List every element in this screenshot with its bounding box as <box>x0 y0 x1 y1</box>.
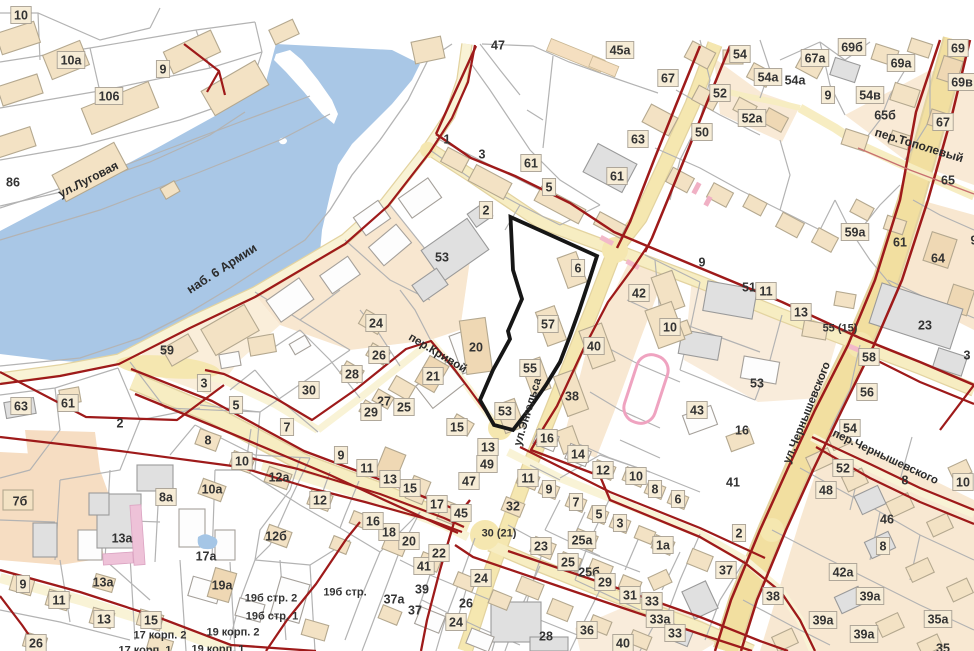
svg-text:10: 10 <box>663 321 677 335</box>
svg-text:9: 9 <box>338 449 345 463</box>
svg-text:13: 13 <box>383 473 397 487</box>
svg-text:11: 11 <box>759 285 772 299</box>
svg-text:56: 56 <box>860 386 874 400</box>
svg-text:12б: 12б <box>265 530 287 544</box>
svg-text:49: 49 <box>480 458 494 472</box>
svg-text:53: 53 <box>498 405 512 419</box>
svg-text:16: 16 <box>735 424 749 438</box>
svg-text:50: 50 <box>695 126 709 140</box>
svg-text:23: 23 <box>918 319 932 333</box>
svg-text:55 (15): 55 (15) <box>823 323 858 335</box>
svg-text:47: 47 <box>491 39 505 53</box>
svg-text:2: 2 <box>736 527 743 541</box>
svg-text:41: 41 <box>726 476 740 490</box>
svg-text:9: 9 <box>20 578 27 592</box>
svg-text:20: 20 <box>469 341 483 355</box>
svg-text:51: 51 <box>742 281 756 295</box>
svg-text:37: 37 <box>719 564 733 578</box>
svg-text:6: 6 <box>575 262 582 276</box>
svg-text:8: 8 <box>902 474 909 488</box>
svg-text:8: 8 <box>652 483 659 497</box>
svg-text:12: 12 <box>596 464 610 478</box>
svg-text:9: 9 <box>825 89 832 103</box>
svg-text:54a: 54a <box>758 71 780 85</box>
svg-text:25: 25 <box>561 556 575 570</box>
svg-text:28: 28 <box>345 368 359 382</box>
svg-text:17 корп. 1: 17 корп. 1 <box>119 645 172 651</box>
svg-text:29: 29 <box>598 576 612 590</box>
svg-text:10: 10 <box>235 455 249 469</box>
svg-text:69в: 69в <box>951 76 973 90</box>
svg-text:47: 47 <box>462 475 476 489</box>
svg-text:30 (21): 30 (21) <box>482 528 517 540</box>
svg-text:53: 53 <box>750 377 764 391</box>
svg-text:106: 106 <box>99 90 120 104</box>
svg-text:61: 61 <box>610 170 624 184</box>
svg-text:67: 67 <box>936 116 950 130</box>
svg-text:29: 29 <box>364 406 378 420</box>
svg-text:11: 11 <box>360 462 373 476</box>
svg-text:33: 33 <box>668 627 682 641</box>
svg-text:32: 32 <box>506 500 520 514</box>
svg-text:6: 6 <box>675 493 682 507</box>
svg-text:18: 18 <box>382 526 396 540</box>
svg-text:35a: 35a <box>928 613 950 627</box>
svg-text:3: 3 <box>617 517 624 531</box>
svg-text:63: 63 <box>14 400 28 414</box>
svg-text:16: 16 <box>540 432 554 446</box>
svg-text:25a: 25a <box>572 534 594 548</box>
svg-text:9: 9 <box>546 483 553 497</box>
svg-text:7: 7 <box>573 496 580 510</box>
svg-text:5: 5 <box>596 508 603 522</box>
svg-text:13a: 13a <box>112 532 134 546</box>
svg-text:11: 11 <box>521 472 534 486</box>
svg-text:69a: 69a <box>891 57 913 71</box>
svg-text:54a: 54a <box>785 74 807 88</box>
svg-text:37a: 37a <box>384 593 406 607</box>
svg-text:17: 17 <box>430 498 444 512</box>
svg-text:26: 26 <box>372 349 386 363</box>
svg-text:12: 12 <box>313 494 327 508</box>
svg-text:33: 33 <box>645 595 659 609</box>
svg-text:10a: 10a <box>61 54 83 68</box>
svg-text:5: 5 <box>546 181 553 195</box>
svg-text:24: 24 <box>369 317 383 331</box>
svg-text:20: 20 <box>402 535 416 549</box>
svg-text:10: 10 <box>629 470 643 484</box>
svg-text:9: 9 <box>971 234 974 248</box>
svg-text:13a: 13a <box>93 576 115 590</box>
svg-text:64: 64 <box>931 252 945 266</box>
svg-text:52: 52 <box>836 462 850 476</box>
svg-text:8: 8 <box>205 434 212 448</box>
svg-text:55: 55 <box>523 362 537 376</box>
svg-text:1a: 1a <box>656 539 671 553</box>
svg-text:39a: 39a <box>813 614 835 628</box>
svg-text:86: 86 <box>6 176 20 190</box>
svg-text:61: 61 <box>61 397 75 411</box>
svg-text:61: 61 <box>524 157 538 171</box>
svg-text:10a: 10a <box>202 483 224 497</box>
svg-text:57: 57 <box>541 318 555 332</box>
svg-text:23: 23 <box>534 540 548 554</box>
svg-text:13: 13 <box>794 306 808 320</box>
svg-text:37: 37 <box>408 604 422 618</box>
svg-text:65: 65 <box>941 174 955 188</box>
svg-text:9: 9 <box>160 63 167 77</box>
svg-text:45: 45 <box>454 507 468 521</box>
svg-text:35: 35 <box>936 642 950 651</box>
svg-text:54: 54 <box>733 48 747 62</box>
svg-text:22: 22 <box>432 547 446 561</box>
svg-text:52: 52 <box>713 87 727 101</box>
svg-text:67a: 67a <box>805 52 827 66</box>
svg-text:36: 36 <box>580 624 594 638</box>
svg-text:25: 25 <box>397 401 411 415</box>
svg-text:15: 15 <box>144 614 158 628</box>
svg-text:26: 26 <box>459 597 473 611</box>
svg-text:3: 3 <box>964 349 971 363</box>
svg-text:58: 58 <box>862 351 876 365</box>
svg-text:8: 8 <box>880 540 887 554</box>
svg-text:10: 10 <box>956 476 970 490</box>
svg-text:63: 63 <box>631 133 645 147</box>
svg-text:11: 11 <box>52 594 65 608</box>
svg-text:1: 1 <box>444 133 451 147</box>
svg-text:39: 39 <box>415 583 429 597</box>
svg-text:42: 42 <box>632 287 646 301</box>
svg-text:43: 43 <box>690 404 704 418</box>
svg-text:13: 13 <box>97 613 111 627</box>
svg-text:7: 7 <box>284 421 291 435</box>
svg-text:59: 59 <box>160 344 174 358</box>
svg-text:2: 2 <box>483 204 490 218</box>
svg-text:17 корп. 2: 17 корп. 2 <box>134 630 187 642</box>
svg-text:26: 26 <box>29 637 43 651</box>
svg-text:48: 48 <box>819 484 833 498</box>
svg-text:24: 24 <box>474 572 488 586</box>
svg-text:65б: 65б <box>874 109 896 123</box>
svg-text:14: 14 <box>571 448 585 462</box>
svg-text:8a: 8a <box>159 491 174 505</box>
svg-text:19б стр. 1: 19б стр. 1 <box>246 611 299 623</box>
svg-text:45a: 45a <box>610 44 632 58</box>
svg-text:53: 53 <box>435 251 449 265</box>
svg-text:40: 40 <box>616 637 630 651</box>
svg-text:28: 28 <box>539 630 553 644</box>
svg-text:38: 38 <box>565 390 579 404</box>
svg-text:5: 5 <box>233 399 240 413</box>
svg-text:19 корп. 2: 19 корп. 2 <box>207 627 260 639</box>
svg-text:9: 9 <box>699 256 706 270</box>
svg-text:3: 3 <box>479 148 486 162</box>
svg-text:59a: 59a <box>845 226 867 240</box>
svg-text:19 корп. 1: 19 корп. 1 <box>192 644 245 651</box>
svg-text:19б стр. 2: 19б стр. 2 <box>245 593 298 605</box>
svg-text:12a: 12a <box>269 471 291 485</box>
svg-text:10: 10 <box>14 9 28 23</box>
svg-text:54в: 54в <box>859 89 881 103</box>
svg-text:19б стр.: 19б стр. <box>323 587 366 599</box>
svg-text:17a: 17a <box>196 550 218 564</box>
svg-text:42a: 42a <box>833 566 855 580</box>
svg-text:7б: 7б <box>13 495 28 509</box>
svg-text:13: 13 <box>481 441 495 455</box>
svg-text:39a: 39a <box>860 590 882 604</box>
svg-text:30: 30 <box>302 384 316 398</box>
svg-text:40: 40 <box>587 340 601 354</box>
svg-text:52a: 52a <box>742 112 764 126</box>
svg-text:19a: 19a <box>212 579 234 593</box>
svg-text:24: 24 <box>449 616 463 630</box>
svg-text:21: 21 <box>426 370 440 384</box>
svg-text:2: 2 <box>117 417 124 431</box>
svg-text:3: 3 <box>201 377 208 391</box>
svg-text:61: 61 <box>893 236 907 250</box>
svg-text:15: 15 <box>403 482 417 496</box>
svg-text:46: 46 <box>880 513 894 527</box>
svg-text:16: 16 <box>366 515 380 529</box>
svg-text:69: 69 <box>951 42 965 56</box>
svg-text:69б: 69б <box>841 41 863 55</box>
svg-text:15: 15 <box>450 421 464 435</box>
svg-text:39a: 39a <box>854 628 876 642</box>
svg-text:31: 31 <box>623 589 637 603</box>
svg-text:38: 38 <box>766 590 780 604</box>
svg-text:67: 67 <box>661 72 675 86</box>
